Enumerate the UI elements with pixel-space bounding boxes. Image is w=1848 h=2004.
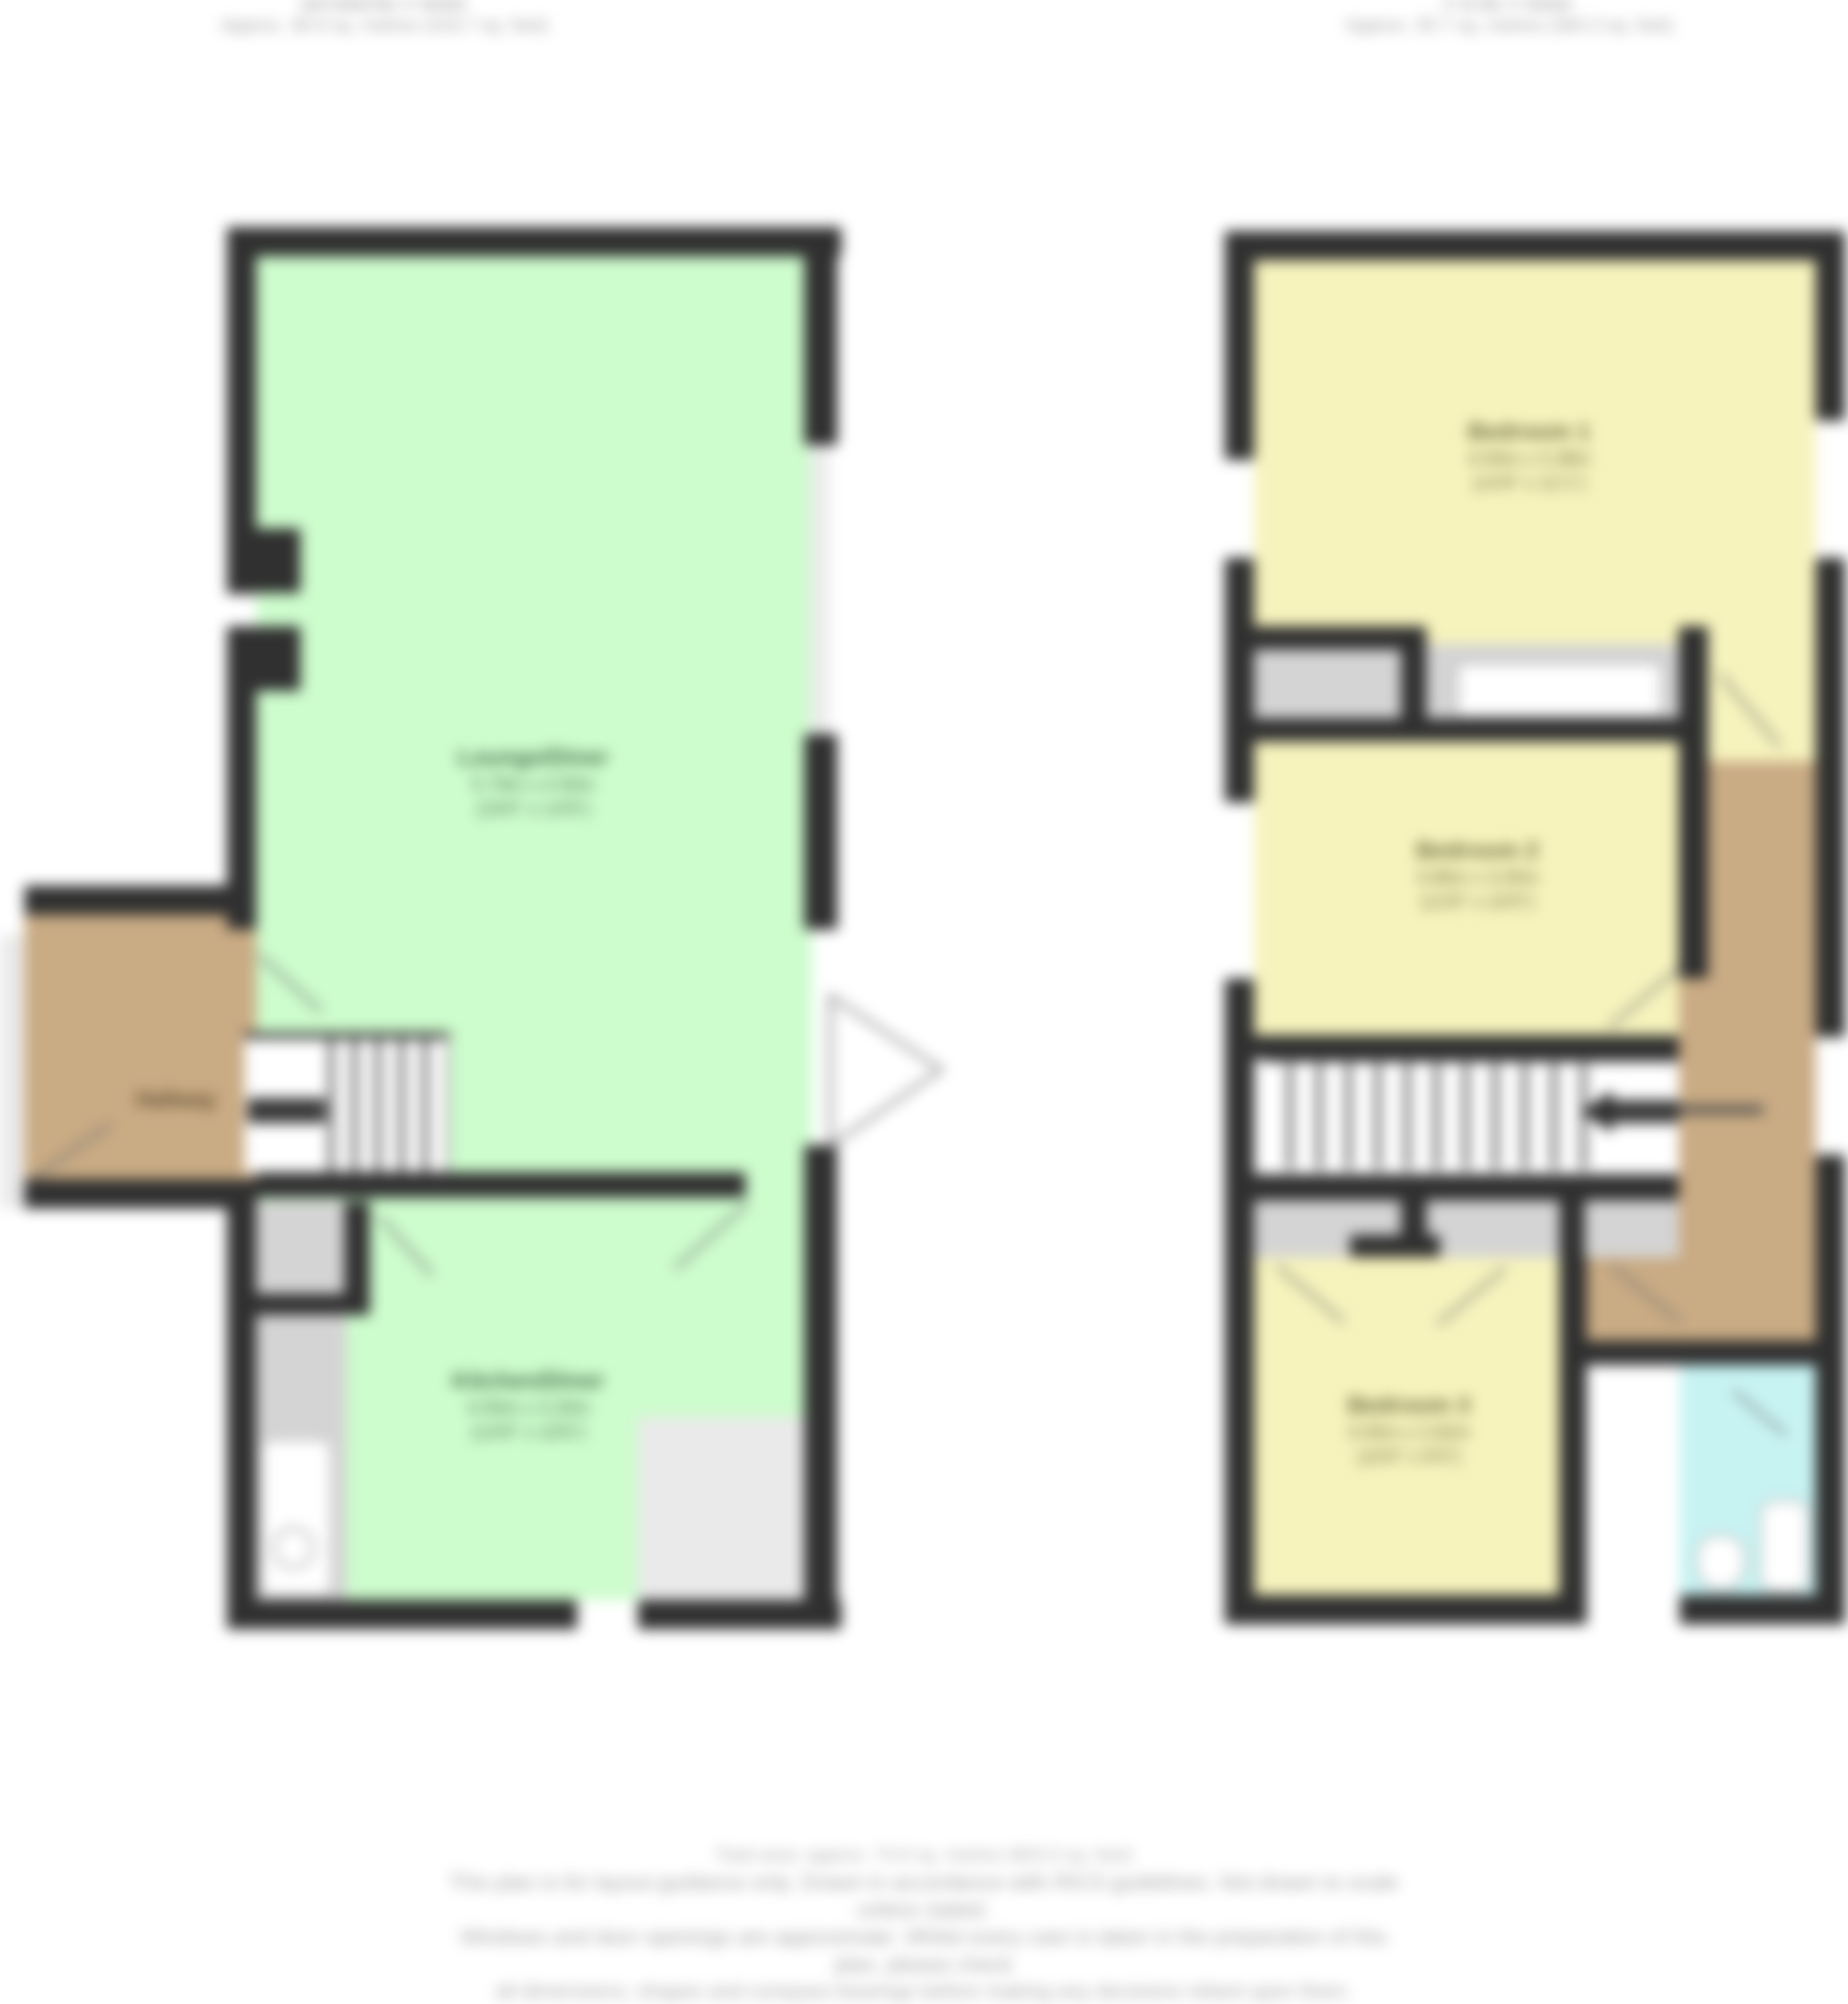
- back-door-gap: [577, 1600, 638, 1629]
- wall-right-b: [804, 734, 837, 930]
- room-dims-metric: 5.79m x 4.50m: [458, 773, 609, 797]
- entrance-step: [0, 934, 24, 1208]
- stair-direction-bar: [248, 1098, 326, 1123]
- chimney-stub-upper: [256, 528, 300, 593]
- stair-tread: [1375, 1064, 1380, 1169]
- hallway-label: Hallway: [136, 1087, 216, 1113]
- stair-tread: [329, 1039, 334, 1172]
- stair-tread: [1493, 1064, 1498, 1169]
- disclaimer-line: Windows and door openings are approximat…: [434, 1924, 1413, 1979]
- stair-arrow-head: [1581, 1090, 1612, 1133]
- hallway-wall-top: [24, 886, 227, 915]
- room-dims-metric: 4.50m x 3.38m: [1467, 447, 1591, 472]
- bedroom2-label: Bedroom 2 3.86m x 3.05m (12'8" x 10'0"): [1416, 837, 1539, 915]
- wall-top: [227, 227, 841, 256]
- wall-bottom: [227, 1600, 841, 1629]
- room-dims-imperial: (12'8" x 10'0"): [1416, 890, 1539, 915]
- disclaimer-line: all dimensions, shapes and compass beari…: [434, 1979, 1413, 2004]
- toilet: [1695, 1534, 1746, 1591]
- wall-left-upper: [227, 256, 256, 930]
- bedroom2-bottom-wall: [1254, 1035, 1679, 1059]
- bedroom2-door-gap: [1679, 979, 1708, 1035]
- living-room-label: Lounge/Diner 5.79m x 4.50m (19'0" x 14'9…: [458, 744, 609, 822]
- disclaimer-line: This plan is for layout guidance only. D…: [434, 1869, 1413, 1924]
- disclaimer-line: Total area: approx. 74.6 sq. metres (803…: [434, 1844, 1413, 1869]
- ground-floor-title: Ground Floor Approx. 38.9 sq. metres (41…: [221, 0, 549, 39]
- bottom-door-gap: [1587, 1595, 1680, 1624]
- landing-floor-wide: [1587, 1255, 1679, 1341]
- floor-area: Approx. 35.7 sq. metres (384.3 sq. feet): [1346, 14, 1674, 39]
- sink-unit: [260, 1438, 333, 1597]
- stair-arrow-bar: [1612, 1100, 1679, 1123]
- patio-threshold: [638, 1417, 812, 1600]
- room-dims-imperial: (19'0" x 14'9"): [458, 797, 609, 822]
- wall-left-lower: [227, 1179, 256, 1629]
- sink-bowl: [272, 1526, 315, 1570]
- room-name: Lounge/Diner: [458, 744, 609, 773]
- wall-right-b: [1816, 558, 1845, 1037]
- disclaimer-text: Total area: approx. 74.6 sq. metres (803…: [434, 1844, 1413, 2004]
- bedroom3-right-wall: [1559, 1257, 1587, 1595]
- stair-arrow-tail: [1679, 1106, 1763, 1114]
- room-dims-imperial: (10'0" x 9'3"): [1347, 1445, 1470, 1470]
- below-stairs-wall: [1254, 1174, 1679, 1201]
- passage-stub-right: [1559, 1201, 1585, 1257]
- closet-wall-bottom: [256, 1294, 370, 1315]
- basin: [1759, 1499, 1810, 1593]
- floor-area: Approx. 38.9 sq. metres (418.7 sq. feet): [221, 14, 549, 39]
- internal-wall: [256, 1172, 745, 1198]
- closet-wall-right: [344, 1202, 370, 1305]
- built-in-cupboard: [1456, 661, 1663, 718]
- stair-tread: [1405, 1064, 1410, 1169]
- room-name: Kitchen/Diner: [452, 1367, 605, 1396]
- stair-tread: [1464, 1064, 1468, 1169]
- stair-tread: [1434, 1064, 1439, 1169]
- stair-tread: [352, 1039, 357, 1172]
- bedroom3-label: Bedroom 3 3.05m x 2.82m (10'0" x 9'3"): [1347, 1391, 1470, 1470]
- window-glazing: [810, 445, 830, 734]
- floor-title: First Floor: [1346, 0, 1674, 14]
- landing-passage: [1254, 1201, 1679, 1257]
- wall-left-a: [1225, 260, 1254, 460]
- stair-rail: [245, 1032, 450, 1039]
- room-dims-metric: 3.05m x 2.82m: [1347, 1421, 1470, 1445]
- bedroom1-door-area: [1692, 644, 1816, 761]
- wall-top: [1225, 231, 1845, 260]
- chimney-stub-lower: [256, 626, 300, 691]
- stair-tread: [1287, 1064, 1292, 1169]
- door-recess: [1587, 1363, 1680, 1624]
- room-dims-imperial: (14'9" x 11'1"): [1467, 472, 1591, 496]
- wall-right-a: [804, 227, 837, 445]
- stair-tread: [1317, 1064, 1322, 1169]
- stair-tread: [1552, 1064, 1556, 1169]
- room-dims-metric: 4.50m x 3.20m: [452, 1396, 605, 1421]
- stair-tread: [1522, 1064, 1527, 1169]
- strip-bottom-wall: [1254, 718, 1679, 742]
- room-name: Bedroom 2: [1416, 837, 1539, 866]
- door-threshold-bar: [1350, 1235, 1440, 1257]
- floor-title: Ground Floor: [221, 0, 549, 14]
- room-dims-metric: 3.86m x 3.05m: [1416, 866, 1539, 890]
- landing-floor-upper: [1708, 761, 1816, 1035]
- room-name: Bedroom 1: [1467, 418, 1591, 447]
- first-floor-title: First Floor Approx. 35.7 sq. metres (384…: [1346, 0, 1674, 39]
- stair-tread: [399, 1039, 404, 1172]
- entrance-arrow-icon: [828, 993, 947, 1150]
- hallway-floor: [24, 915, 256, 1199]
- wall-right-a: [1816, 231, 1845, 421]
- chimney-recess: [227, 594, 256, 626]
- landing-floor-lower: [1679, 1035, 1816, 1341]
- wall-bottom: [1225, 1595, 1845, 1624]
- stair-tread: [1346, 1064, 1351, 1169]
- kitchen-label: Kitchen/Diner 4.50m x 3.20m (14'9" x 10'…: [452, 1367, 605, 1445]
- wall-left-c: [1225, 979, 1254, 1624]
- wall-right-c: [804, 1145, 837, 1629]
- bathroom-top-wall: [1574, 1341, 1816, 1365]
- stair-edge-line: [445, 1035, 449, 1172]
- room-dims-imperial: (14'9" x 10'6"): [452, 1421, 605, 1445]
- hallway-wall-bottom: [24, 1179, 256, 1208]
- bedroom1-label: Bedroom 1 4.50m x 3.38m (14'9" x 11'1"): [1467, 418, 1591, 496]
- stair-tread: [423, 1039, 428, 1172]
- floor-plan-page: Lounge/Diner 5.79m x 4.50m (19'0" x 14'9…: [0, 0, 1848, 2004]
- wall-left-b: [1225, 558, 1254, 802]
- room-name: Bedroom 3: [1347, 1391, 1470, 1421]
- stair-tread: [376, 1039, 381, 1172]
- wall-right-c: [1816, 1155, 1845, 1624]
